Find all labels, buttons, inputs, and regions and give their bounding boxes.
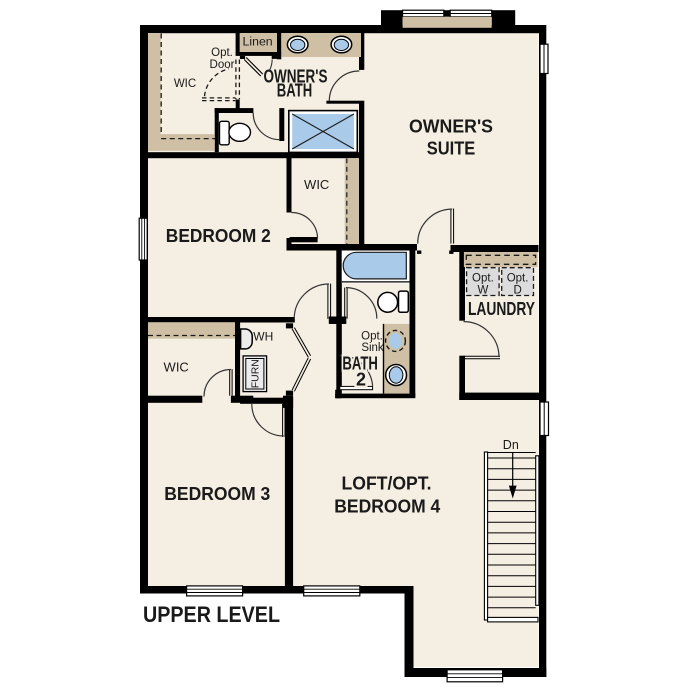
svg-text:FURN: FURN [250,359,262,388]
svg-text:W: W [477,285,488,297]
svg-text:LAUNDRY: LAUNDRY [468,299,535,319]
svg-text:Door: Door [210,59,235,71]
svg-text:Opt.: Opt. [361,331,383,343]
svg-text:LOFT/OPT.: LOFT/OPT. [342,474,432,494]
svg-text:BEDROOM 4: BEDROOM 4 [334,496,440,516]
svg-text:OWNER'S: OWNER'S [409,117,493,137]
svg-text:BEDROOM 3: BEDROOM 3 [164,484,270,504]
svg-text:Linen: Linen [243,35,273,49]
svg-text:D: D [513,285,521,297]
svg-text:Opt.: Opt. [211,47,233,59]
svg-text:SUITE: SUITE [427,139,476,159]
svg-text:UPPER LEVEL: UPPER LEVEL [143,602,280,627]
svg-text:2: 2 [356,370,366,390]
svg-text:WIC: WIC [304,177,329,192]
svg-text:WH: WH [253,330,273,344]
svg-text:Dn: Dn [503,438,519,452]
svg-text:Opt.: Opt. [507,273,529,285]
svg-text:Sink: Sink [361,342,384,354]
svg-text:WIC: WIC [174,78,196,90]
svg-text:BATH: BATH [277,81,313,101]
svg-text:WIC: WIC [164,360,189,375]
svg-text:Opt.: Opt. [472,273,494,285]
svg-text:BEDROOM 2: BEDROOM 2 [166,226,271,246]
